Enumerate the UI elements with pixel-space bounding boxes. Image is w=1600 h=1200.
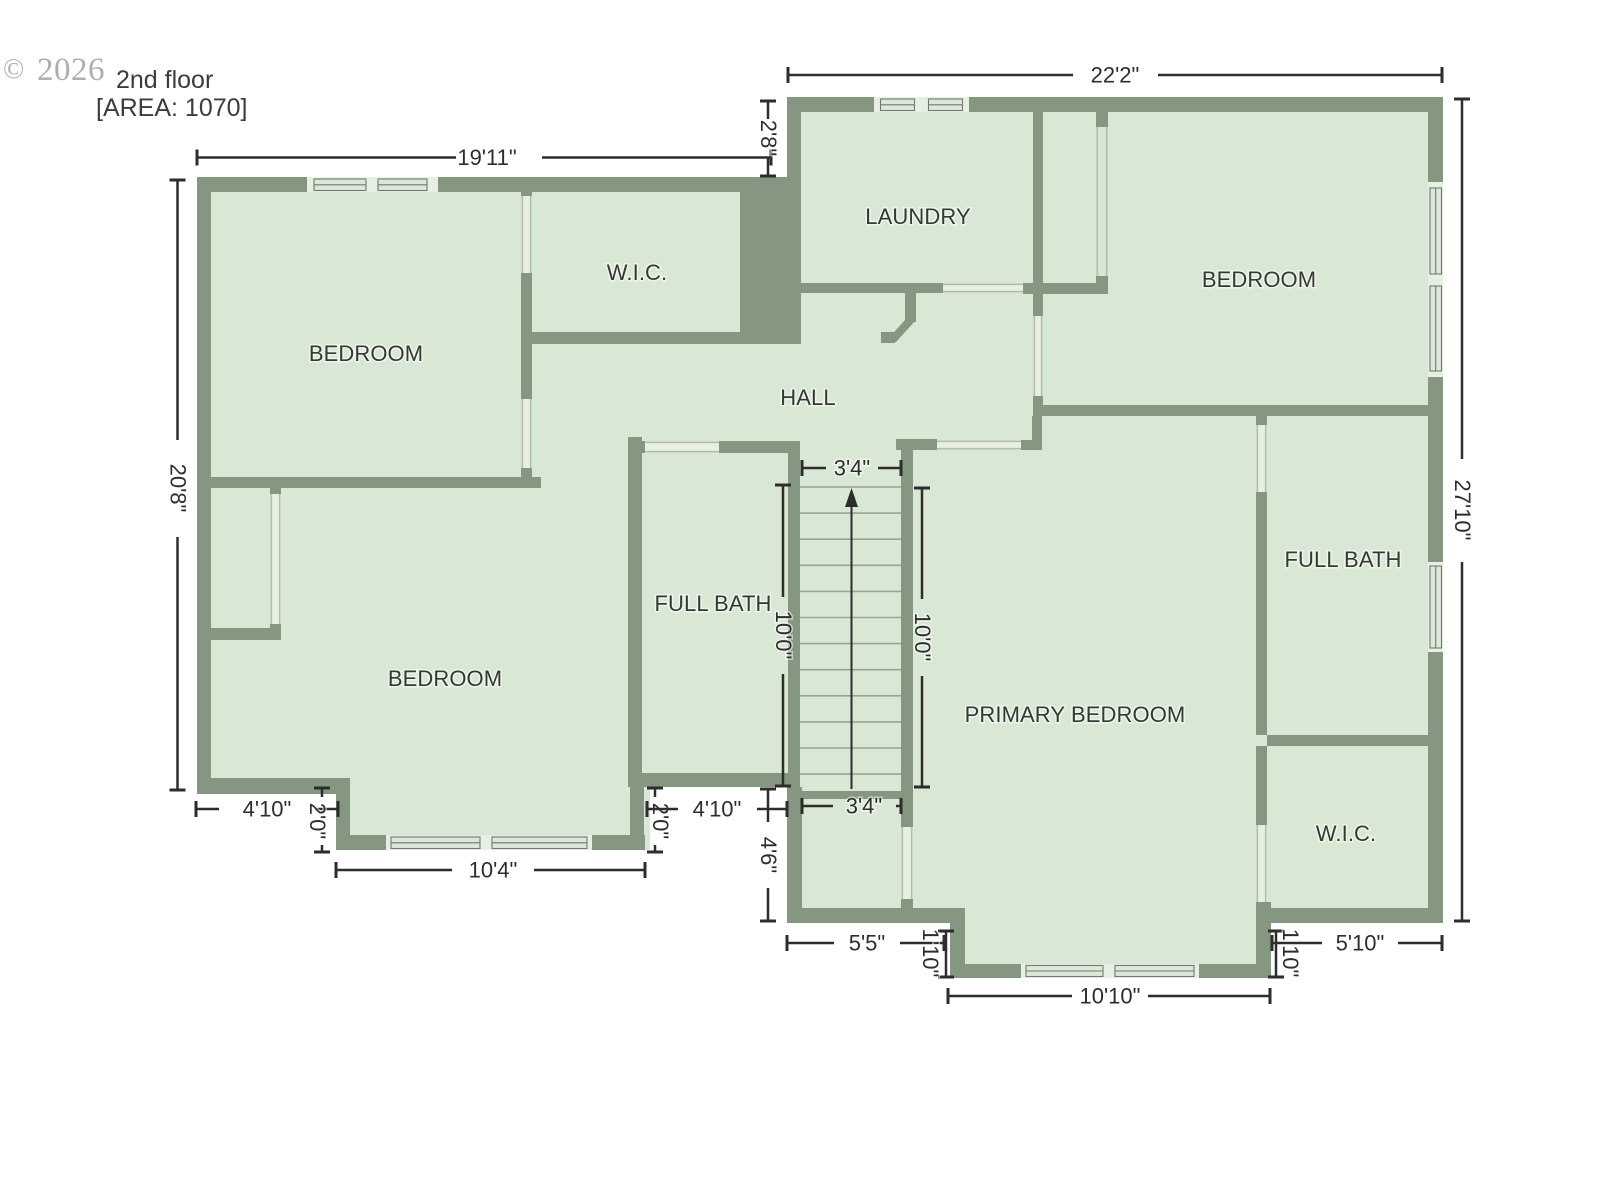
svg-text:PRIMARY BEDROOM: PRIMARY BEDROOM — [965, 702, 1186, 727]
svg-text:27'10": 27'10" — [1450, 480, 1475, 541]
svg-text:4'10": 4'10" — [693, 797, 742, 822]
svg-text:3'4": 3'4" — [834, 456, 870, 481]
svg-text:1'10": 1'10" — [1278, 929, 1303, 978]
svg-text:5'5": 5'5" — [849, 931, 885, 956]
svg-text:HALL: HALL — [780, 385, 835, 410]
svg-text:4'10": 4'10" — [243, 797, 292, 822]
svg-text:BEDROOM: BEDROOM — [1202, 267, 1316, 292]
svg-text:20'8": 20'8" — [166, 464, 191, 513]
svg-text:10'0": 10'0" — [771, 611, 796, 660]
svg-text:W.I.C.: W.I.C. — [607, 260, 668, 285]
svg-text:19'11": 19'11" — [457, 145, 516, 170]
svg-text:2'0": 2'0" — [305, 803, 330, 839]
svg-text:BEDROOM: BEDROOM — [388, 666, 502, 691]
svg-text:LAUNDRY: LAUNDRY — [865, 204, 971, 229]
svg-text:FULL BATH: FULL BATH — [654, 591, 771, 616]
svg-text:22'2": 22'2" — [1091, 63, 1140, 88]
svg-text:2nd floor: 2nd floor — [116, 66, 213, 94]
svg-text:10'10": 10'10" — [1080, 984, 1141, 1009]
svg-text:[AREA: 1070]: [AREA: 1070] — [96, 94, 247, 122]
svg-text:2'8": 2'8" — [756, 120, 781, 156]
svg-text:©: © — [3, 54, 24, 85]
svg-text:5'10": 5'10" — [1336, 931, 1385, 956]
svg-text:10'4": 10'4" — [469, 858, 518, 883]
svg-text:1'10": 1'10" — [918, 929, 943, 978]
svg-text:2026: 2026 — [37, 52, 105, 88]
svg-text:FULL BATH: FULL BATH — [1284, 547, 1401, 572]
svg-text:W.I.C.: W.I.C. — [1316, 821, 1377, 846]
svg-text:BEDROOM: BEDROOM — [309, 341, 423, 366]
svg-text:4'6": 4'6" — [756, 837, 781, 873]
svg-text:10'0": 10'0" — [910, 613, 935, 662]
svg-text:3'4": 3'4" — [846, 794, 882, 819]
